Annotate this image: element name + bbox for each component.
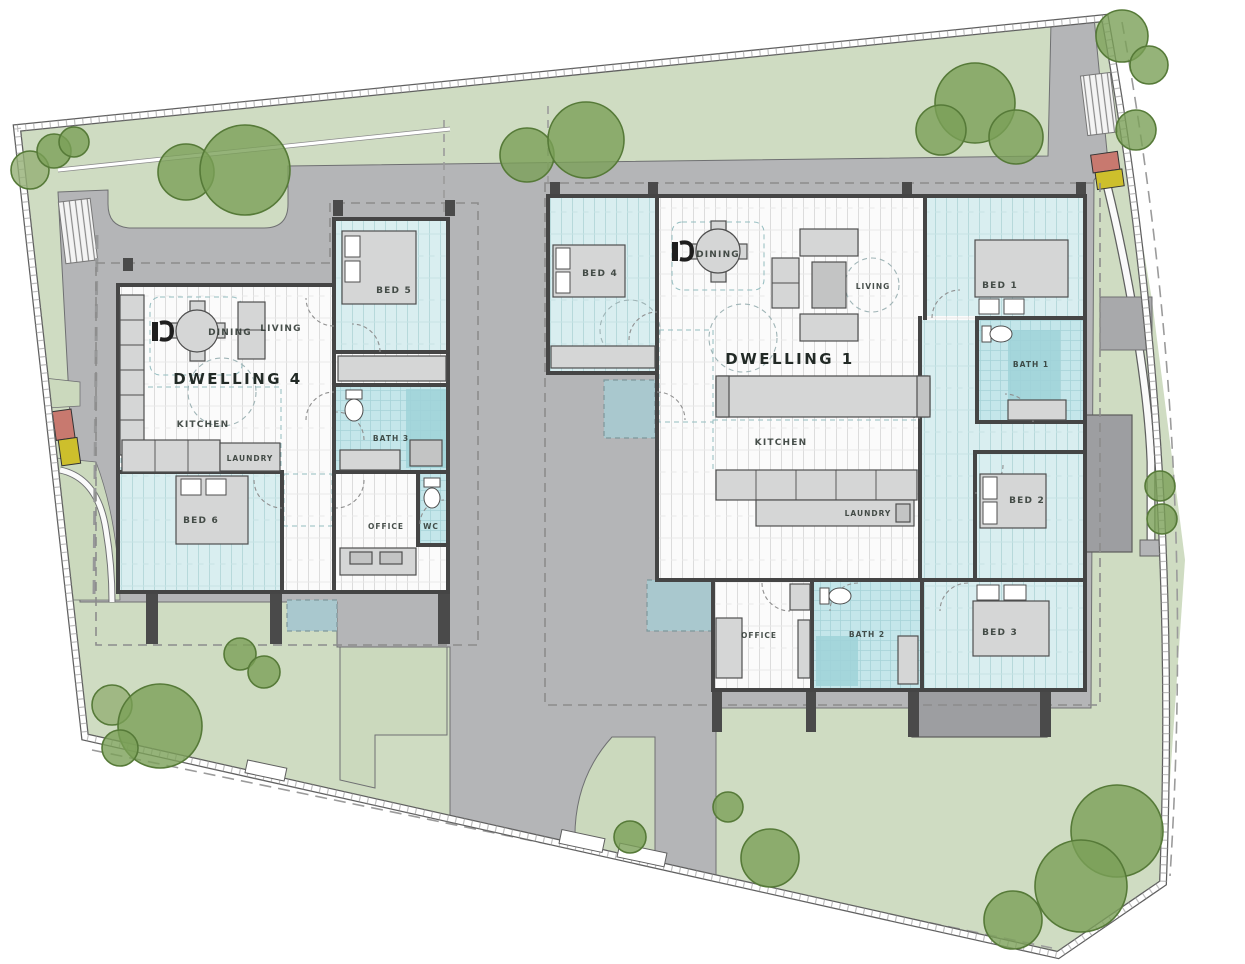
d1-carpet-hall2: [977, 424, 1083, 452]
site-plan-canvas: DWELLING 4 DINING LIVING KITCHEN LAUNDRY…: [0, 0, 1245, 964]
tree: [1035, 840, 1127, 932]
tree: [1145, 471, 1175, 501]
tree: [59, 127, 89, 157]
tree: [548, 102, 624, 178]
d4-bed6: [176, 476, 248, 544]
entry-mat-d4-south: [287, 600, 337, 631]
tree: [984, 891, 1042, 949]
ramp-hatch-left: [58, 198, 97, 263]
d1-label-bath1: BATH 1: [1013, 360, 1049, 369]
d1-bed4-wardrobe: [551, 346, 655, 368]
entry-mat-d1-south: [647, 580, 713, 631]
tree: [713, 792, 743, 822]
patio-east: [1082, 415, 1132, 552]
tree: [1116, 110, 1156, 150]
tree: [248, 656, 280, 688]
d1-label-bath2: BATH 2: [849, 630, 885, 639]
d1-carpet-hall: [922, 320, 977, 578]
d4-wardrobe: [338, 356, 446, 381]
d1-label-bed3: BED 3: [982, 628, 1018, 638]
tree: [500, 128, 554, 182]
tree: [741, 829, 799, 887]
d1-label-laundry: LAUNDRY: [845, 509, 892, 518]
path-terminus: [1140, 540, 1161, 556]
d1-label-living: LIVING: [856, 282, 891, 291]
tree: [614, 821, 646, 853]
tree: [989, 110, 1043, 164]
d4-label-bath3: BATH 3: [373, 434, 409, 443]
marker-red: [52, 409, 75, 440]
d4-label-living: LIVING: [260, 324, 302, 334]
floor-plan-svg: DWELLING 4 DINING LIVING KITCHEN LAUNDRY…: [0, 0, 1245, 964]
tree: [1130, 46, 1168, 84]
d4-label-wc: WC: [423, 522, 439, 531]
d4-label-dining: DINING: [208, 328, 252, 338]
d1-bath2-shower: [816, 636, 858, 686]
d4-label-laundry: LAUNDRY: [227, 454, 274, 463]
tree: [916, 105, 966, 155]
marker-yellow: [58, 437, 80, 465]
tree: [200, 125, 290, 215]
d1-label-kitchen: KITCHEN: [755, 438, 808, 448]
d4-label-bed6: BED 6: [183, 516, 219, 526]
d1-label-bed4: BED 4: [582, 269, 618, 279]
d1-title: DWELLING 1: [725, 350, 854, 368]
d4-title: DWELLING 4: [173, 370, 302, 388]
entry-mat-d1-west: [604, 380, 655, 438]
tree: [102, 730, 138, 766]
d4-label-office: OFFICE: [368, 522, 404, 531]
d1-label-office: OFFICE: [741, 631, 777, 640]
d1-label-bed1: BED 1: [982, 281, 1018, 291]
d4-label-kitchen: KITCHEN: [177, 420, 230, 430]
d1-label-bed2: BED 2: [1009, 496, 1045, 506]
d1-label-dining: DINING: [696, 250, 740, 260]
d4-label-bed5: BED 5: [376, 286, 412, 296]
d4-office-desk: [340, 548, 416, 575]
d4-wc-toilet: [424, 478, 440, 508]
tree: [1147, 504, 1177, 534]
d1-kitchen-island: [716, 376, 930, 417]
patio-bed3: [912, 690, 1047, 737]
